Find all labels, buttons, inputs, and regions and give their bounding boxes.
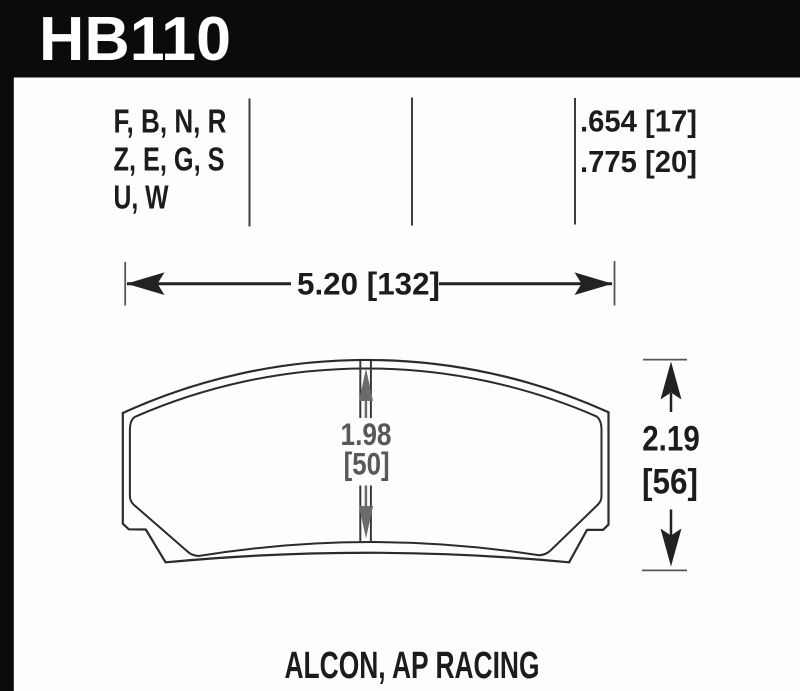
svg-text:ALCON, AP RACING: ALCON, AP RACING: [285, 645, 540, 687]
svg-text:Z, E, G, S: Z, E, G, S: [114, 141, 225, 178]
svg-text:2.19: 2.19: [642, 418, 700, 458]
svg-text:.654 [17]: .654 [17]: [580, 104, 697, 139]
svg-text:.775 [20]: .775 [20]: [580, 144, 697, 179]
svg-text:U, W: U, W: [114, 179, 170, 216]
svg-text:[50]: [50]: [344, 446, 390, 482]
svg-text:F, B, N, R: F, B, N, R: [114, 103, 227, 140]
svg-text:5.20 [132]: 5.20 [132]: [297, 266, 440, 302]
svg-text:HB110: HB110: [39, 5, 231, 74]
svg-text:[56]: [56]: [642, 462, 698, 502]
